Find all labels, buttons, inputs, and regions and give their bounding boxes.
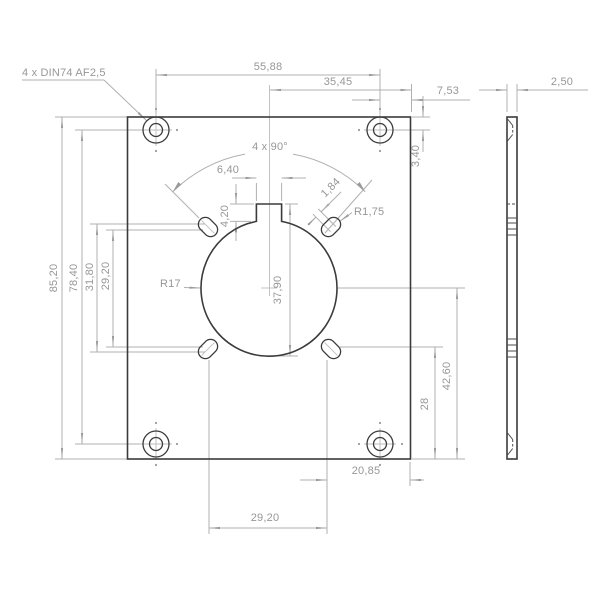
side-view (507, 117, 517, 459)
dim-text-78-40: 78,40 (68, 264, 80, 293)
hole-crosshair-top-right (358, 108, 396, 152)
dim-text-2-50: 2,50 (551, 76, 573, 88)
angle-arrow-right (357, 182, 366, 192)
dim-text-7-53: 7,53 (437, 85, 459, 97)
dim-text-6-40: 6,40 (217, 164, 239, 176)
angle-arrow-left (173, 182, 182, 192)
dim-line-1-84-a (308, 217, 316, 225)
dim-text-29-20-left: 29,20 (100, 262, 112, 291)
dim-text-85-20: 85,20 (48, 264, 60, 293)
dim-text-42-60: 42,60 (441, 362, 453, 391)
dim-text-37-90: 37,90 (272, 276, 284, 305)
dim-text-1-84: 1,84 (319, 176, 343, 200)
side-countersink-top (508, 119, 513, 141)
dim-text-55-88: 55,88 (254, 61, 283, 73)
slot-upper-right (318, 214, 343, 239)
din-callout-label: 4 x DIN74 AF2,5 (22, 67, 106, 79)
bore-radius-label: R17 (160, 278, 181, 290)
side-hidden-upper (507, 204, 517, 235)
side-countersink-bottom (508, 433, 513, 455)
technical-drawing-svg: 4 x DIN74 AF2,5 55,88 35,45 7,53 2,50 3,… (0, 0, 600, 600)
dim-text-3-40: 3,40 (410, 145, 422, 167)
dimension-lines (22, 69, 588, 534)
slot-centermark-ll (202, 343, 215, 356)
cad-drawing-page: 4 x DIN74 AF2,5 55,88 35,45 7,53 2,50 3,… (0, 0, 600, 600)
dim-text-4-20: 4,20 (219, 205, 231, 227)
dim-text-35-45: 35,45 (324, 76, 353, 88)
slot-axis-ext-left (165, 184, 199, 218)
leader-din-callout (104, 80, 147, 121)
side-hidden-lower (507, 339, 517, 357)
slot-radius-label: R1,75 (354, 206, 384, 218)
slot-centermark-lr (325, 343, 338, 356)
dim-text-29-20-bottom: 29,20 (251, 512, 280, 524)
side-profile-outline (507, 117, 517, 459)
slot-centermark-ul (202, 221, 215, 234)
leader-r17 (184, 288, 201, 289)
dim-text-20-85: 20,85 (352, 465, 381, 477)
dim-text-28: 28 (419, 398, 431, 411)
dim-text-31-80: 31,80 (84, 263, 96, 292)
hole-crosshair-top-left (140, 108, 178, 152)
angle-pattern-label: 4 x 90° (252, 141, 288, 153)
